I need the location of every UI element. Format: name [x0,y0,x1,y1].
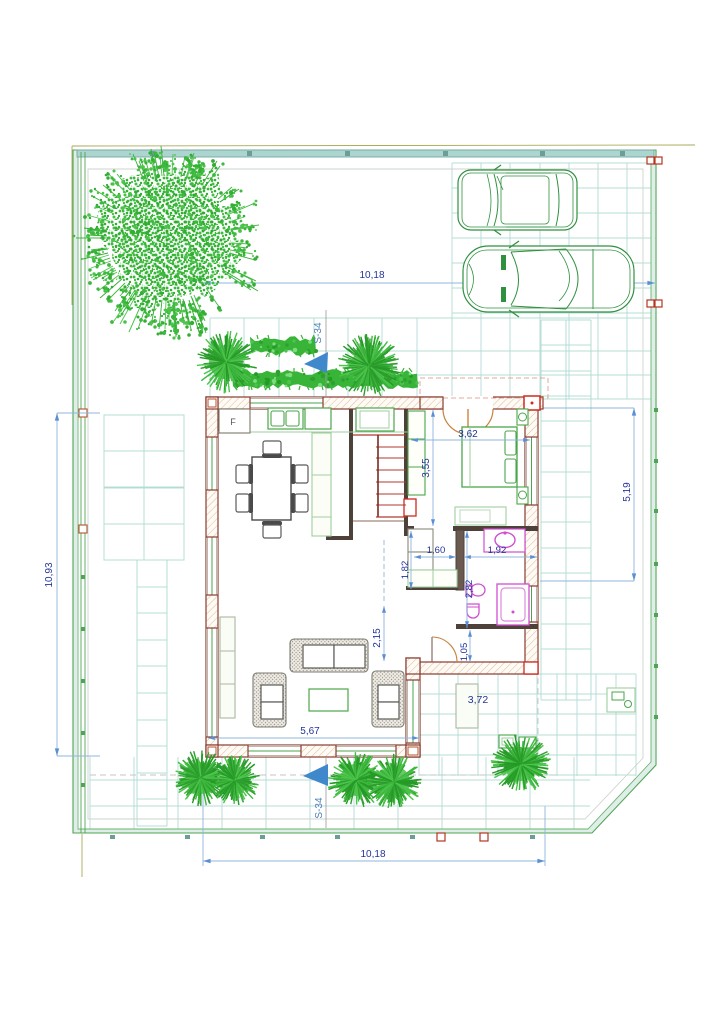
svg-text:2,15: 2,15 [372,628,383,648]
svg-text:1,82: 1,82 [400,561,411,580]
svg-text:1,60: 1,60 [427,545,446,556]
svg-text:10,18: 10,18 [360,849,385,860]
svg-text:10,18: 10,18 [359,270,384,281]
svg-text:1,92: 1,92 [488,545,507,556]
svg-text:2,82: 2,82 [464,580,475,599]
svg-text:5,19: 5,19 [622,482,633,502]
svg-text:10,93: 10,93 [44,562,55,587]
svg-text:S-34: S-34 [313,322,324,344]
svg-text:3,72: 3,72 [468,694,489,706]
svg-text:S-34: S-34 [314,797,325,819]
svg-text:F: F [230,417,236,427]
svg-text:3,55: 3,55 [421,458,432,478]
svg-text:3,62: 3,62 [458,429,478,440]
svg-text:5,67: 5,67 [300,726,320,737]
svg-text:1,05: 1,05 [459,643,470,662]
